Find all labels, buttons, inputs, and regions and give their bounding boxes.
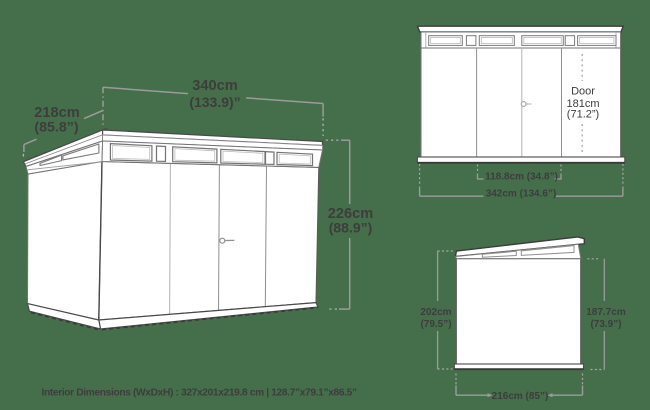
svg-text:Interior Dimensions (WxDxH) :: Interior Dimensions (WxDxH) : 327x201x21… bbox=[42, 388, 357, 399]
svg-text:(73.9”): (73.9”) bbox=[590, 319, 621, 330]
svg-text:(71.2”): (71.2”) bbox=[567, 109, 599, 121]
svg-text:202cm: 202cm bbox=[420, 307, 451, 318]
svg-text:(133.9)”: (133.9)” bbox=[189, 94, 240, 110]
svg-text:118.8cm (34.8”): 118.8cm (34.8”) bbox=[485, 172, 558, 183]
svg-text:187.7cm: 187.7cm bbox=[586, 307, 626, 318]
svg-text:340cm: 340cm bbox=[192, 78, 237, 94]
svg-text:216cm (85”): 216cm (85”) bbox=[492, 391, 549, 402]
svg-text:(85.8”): (85.8”) bbox=[34, 120, 78, 136]
svg-text:Door: Door bbox=[571, 85, 595, 97]
svg-text:342cm (134.6”): 342cm (134.6”) bbox=[486, 189, 557, 200]
svg-text:(88.9”): (88.9”) bbox=[329, 220, 373, 236]
svg-text:(79.5”): (79.5”) bbox=[420, 319, 451, 330]
